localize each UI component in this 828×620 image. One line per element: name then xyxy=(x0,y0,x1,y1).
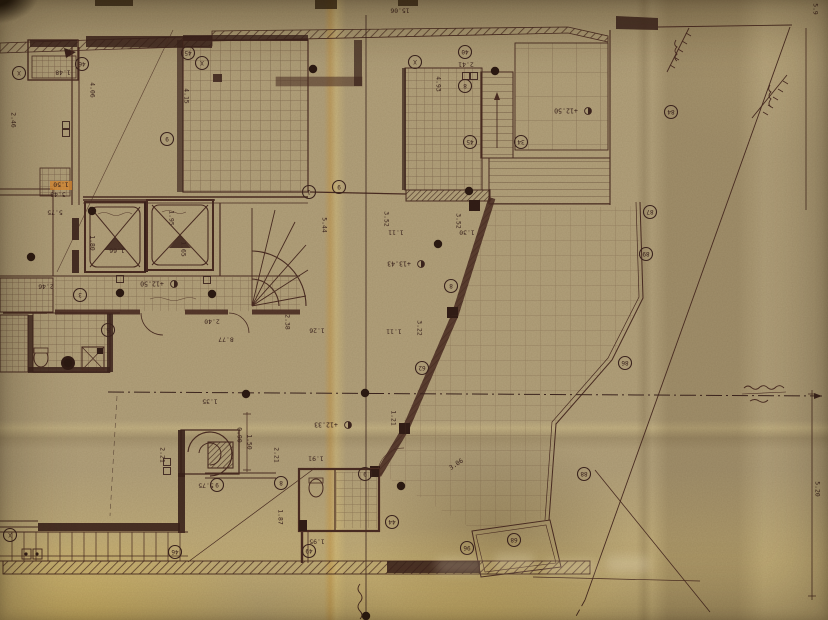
floor-plan-drawing: 15.061.482.464.061.503.485.752.464.152.4… xyxy=(0,0,828,620)
paper-grain-overlay xyxy=(0,0,828,620)
photographed-floor-plan: 15.061.482.464.061.503.485.752.464.152.4… xyxy=(0,0,828,620)
